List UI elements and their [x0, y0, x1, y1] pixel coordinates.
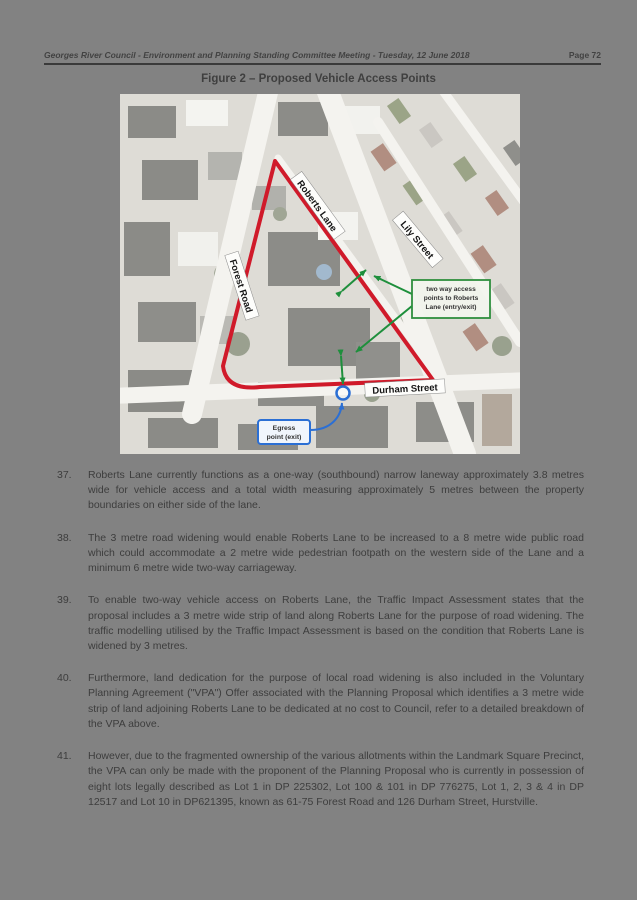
paragraph-number: 40. — [57, 671, 88, 732]
paragraph-text: Furthermore, land dedication for the pur… — [88, 671, 584, 732]
green-annotation-line2: points to Roberts — [424, 295, 479, 302]
paragraph-text: To enable two-way vehicle access on Robe… — [88, 593, 584, 654]
figure-title: Figure 2 – Proposed Vehicle Access Point… — [0, 73, 637, 85]
paragraph-text: Roberts Lane currently functions as a on… — [88, 468, 584, 514]
paragraph-item: 39. To enable two-way vehicle access on … — [57, 593, 584, 654]
paragraph-number: 41. — [57, 749, 88, 810]
paragraph-item: 40. Furthermore, land dedication for the… — [57, 671, 584, 732]
paragraph-item: 41. However, due to the fragmented owner… — [57, 749, 584, 810]
annotation-blue-box: Egress point (exit) — [258, 420, 310, 444]
paragraph-number: 38. — [57, 531, 88, 577]
egress-marker-icon — [337, 387, 350, 400]
header-title: Georges River Council - Environment and … — [44, 50, 470, 60]
paragraph-number: 39. — [57, 593, 88, 654]
page-number: Page 72 — [569, 50, 601, 60]
green-annotation-line3: Lane (entry/exit) — [426, 304, 477, 311]
annotation-green-box: two way access points to Roberts Lane (e… — [412, 280, 490, 318]
green-annotation-line1: two way access — [426, 286, 476, 293]
blue-annotation-line1: Egress — [273, 425, 296, 432]
aerial-photo-texture — [120, 94, 520, 454]
page-header: Georges River Council - Environment and … — [44, 50, 601, 65]
blue-annotation-line2: point (exit) — [267, 434, 302, 441]
document-page: Georges River Council - Environment and … — [0, 0, 637, 900]
paragraph-number: 37. — [57, 468, 88, 514]
figure-map: Roberts Lane Forest Road Lily Street Dur… — [120, 94, 520, 454]
paragraph-text: However, due to the fragmented ownership… — [88, 749, 584, 810]
aerial-map-image: Roberts Lane Forest Road Lily Street Dur… — [120, 94, 520, 454]
paragraph-item: 38. The 3 metre road widening would enab… — [57, 531, 584, 577]
paragraph-text: The 3 metre road widening would enable R… — [88, 531, 584, 577]
paragraph-item: 37. Roberts Lane currently functions as … — [57, 468, 584, 514]
paragraph-list: 37. Roberts Lane currently functions as … — [57, 468, 584, 827]
